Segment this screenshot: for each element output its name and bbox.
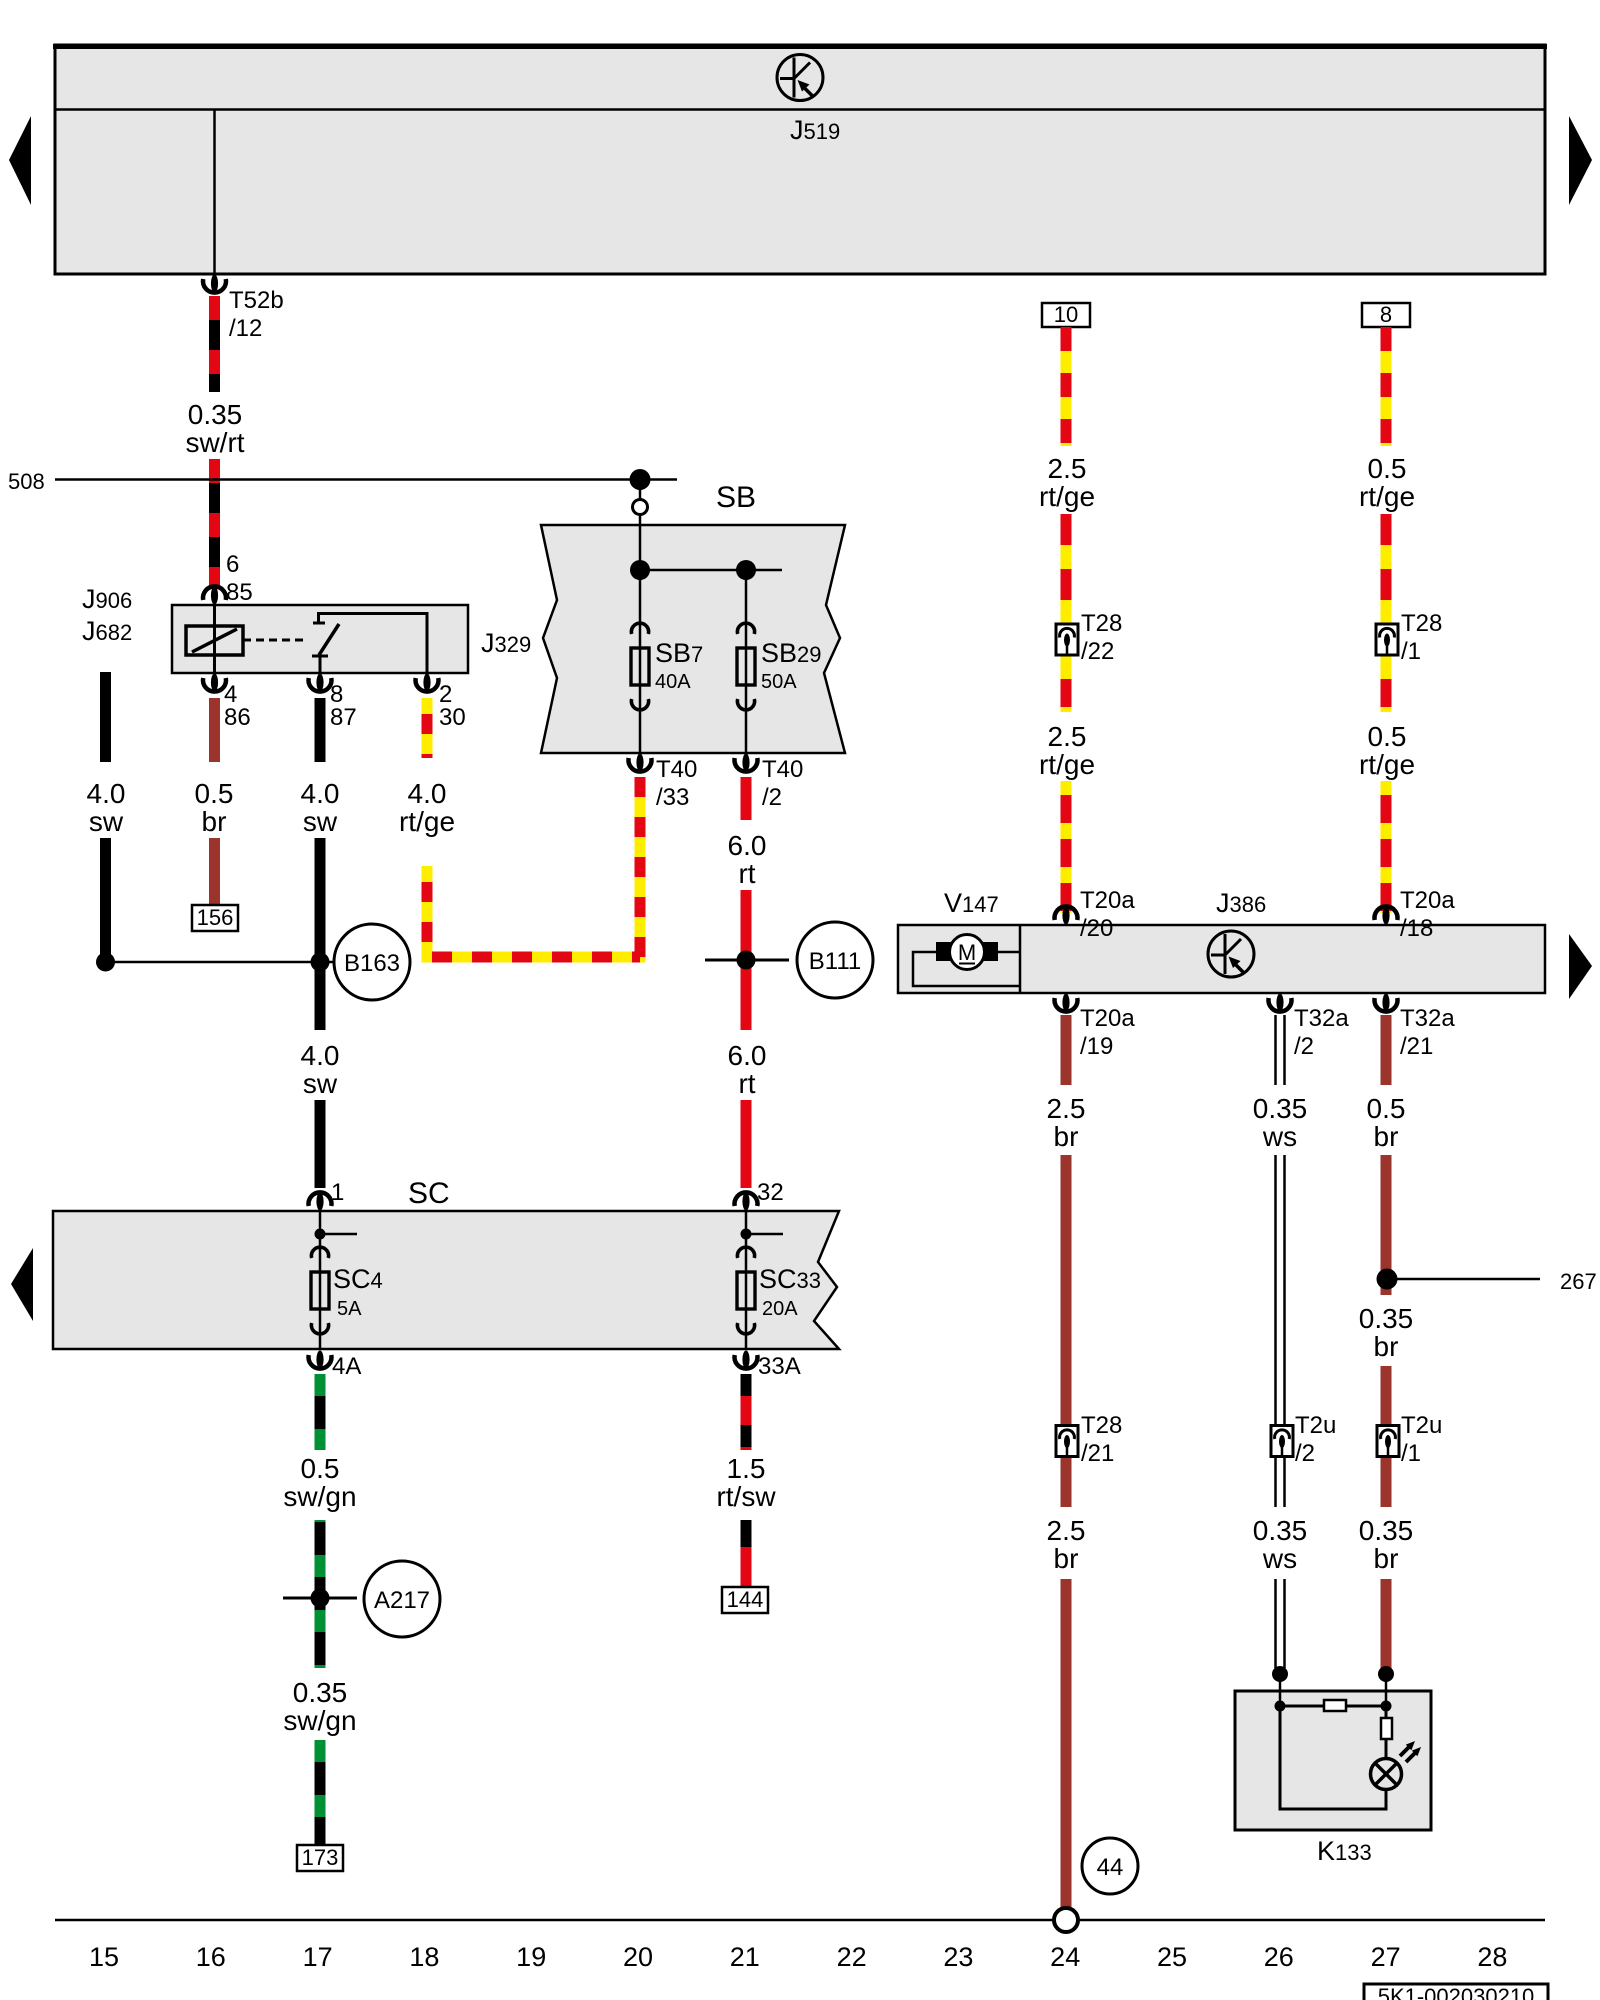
svg-text:0.35: 0.35 [188, 399, 243, 430]
svg-text:2.5: 2.5 [1048, 453, 1087, 484]
svg-text:J329: J329 [481, 628, 531, 658]
svg-text:rt: rt [738, 1068, 755, 1099]
svg-text:26: 26 [1264, 1942, 1294, 1972]
svg-text:4A: 4A [332, 1353, 361, 1380]
svg-text:0.5: 0.5 [1368, 453, 1407, 484]
svg-text:8: 8 [1380, 302, 1392, 327]
svg-text:17: 17 [303, 1942, 333, 1972]
svg-text:/1: /1 [1401, 1440, 1421, 1467]
svg-text:0.35: 0.35 [1359, 1515, 1414, 1546]
svg-text:0.35: 0.35 [1253, 1093, 1308, 1124]
svg-text:br: br [1374, 1331, 1399, 1362]
svg-text:/33: /33 [656, 784, 689, 811]
svg-text:/2: /2 [762, 784, 782, 811]
svg-text:J519: J519 [790, 115, 840, 145]
svg-text:6.0: 6.0 [728, 830, 767, 861]
svg-text:16: 16 [196, 1942, 226, 1972]
svg-text:87: 87 [330, 704, 357, 731]
svg-text:rt/ge: rt/ge [1359, 749, 1415, 780]
svg-text:24: 24 [1050, 1942, 1080, 1972]
svg-text:SB: SB [716, 481, 756, 514]
svg-text:508: 508 [8, 469, 45, 494]
svg-text:19: 19 [516, 1942, 546, 1972]
svg-text:SB29: SB29 [761, 638, 822, 668]
svg-text:25: 25 [1157, 1942, 1187, 1972]
svg-text:32: 32 [757, 1179, 784, 1206]
svg-text:T28: T28 [1081, 610, 1122, 637]
svg-text:br: br [202, 806, 227, 837]
svg-text:5K1-002030210: 5K1-002030210 [1378, 1984, 1535, 2000]
svg-text:br: br [1054, 1121, 1079, 1152]
svg-text:rt: rt [738, 858, 755, 889]
svg-text:SB7: SB7 [655, 638, 703, 668]
svg-text:4.0: 4.0 [301, 778, 340, 809]
svg-text:rt/ge: rt/ge [1039, 481, 1095, 512]
svg-text:J386: J386 [1216, 888, 1266, 918]
svg-text:/22: /22 [1081, 638, 1114, 665]
svg-text:T40: T40 [762, 756, 803, 783]
svg-text:T2u: T2u [1401, 1412, 1442, 1439]
svg-text:1.5: 1.5 [727, 1453, 766, 1484]
svg-text:T32a: T32a [1400, 1005, 1455, 1032]
svg-text:J682: J682 [82, 616, 132, 646]
svg-text:B163: B163 [344, 950, 400, 977]
svg-text:/2: /2 [1295, 1440, 1315, 1467]
svg-text:ws: ws [1262, 1121, 1297, 1152]
svg-text:sw/gn: sw/gn [283, 1705, 356, 1736]
svg-text:5A: 5A [337, 1298, 362, 1320]
svg-text:J906: J906 [82, 584, 132, 614]
svg-text:/19: /19 [1080, 1033, 1113, 1060]
svg-text:23: 23 [943, 1942, 973, 1972]
svg-text:18: 18 [409, 1942, 439, 1972]
svg-text:/18: /18 [1400, 915, 1433, 942]
svg-text:28: 28 [1477, 1942, 1507, 1972]
svg-text:50A: 50A [761, 671, 797, 693]
svg-text:0.35: 0.35 [1359, 1303, 1414, 1334]
svg-text:SC: SC [408, 1177, 450, 1210]
svg-text:rt/ge: rt/ge [1039, 749, 1095, 780]
svg-text:6.0: 6.0 [728, 1040, 767, 1071]
svg-text:2.5: 2.5 [1047, 1093, 1086, 1124]
svg-text:20: 20 [623, 1942, 653, 1972]
svg-text:K133: K133 [1317, 1836, 1372, 1866]
svg-text:44: 44 [1097, 1854, 1124, 1881]
svg-text:sw/gn: sw/gn [283, 1481, 356, 1512]
svg-text:20A: 20A [762, 1298, 798, 1320]
svg-text:SC33: SC33 [759, 1264, 821, 1294]
svg-text:/21: /21 [1400, 1033, 1433, 1060]
svg-text:21: 21 [730, 1942, 760, 1972]
svg-text:0.35: 0.35 [1253, 1515, 1308, 1546]
svg-text:6: 6 [226, 551, 239, 578]
svg-text:br: br [1374, 1543, 1399, 1574]
svg-text:br: br [1374, 1121, 1399, 1152]
svg-text:T2u: T2u [1295, 1412, 1336, 1439]
svg-text:156: 156 [197, 905, 234, 930]
svg-text:86: 86 [224, 704, 251, 731]
svg-text:267: 267 [1560, 1269, 1597, 1294]
svg-text:rt/ge: rt/ge [399, 806, 455, 837]
svg-text:T52b: T52b [229, 287, 284, 314]
svg-text:1: 1 [331, 1179, 344, 1206]
svg-text:SC4: SC4 [333, 1264, 383, 1294]
svg-text:sw: sw [303, 1068, 338, 1099]
svg-text:0.5: 0.5 [1367, 1093, 1406, 1124]
svg-text:sw: sw [89, 806, 124, 837]
svg-text:T20a: T20a [1080, 887, 1135, 914]
svg-text:15: 15 [89, 1942, 119, 1972]
svg-text:T20a: T20a [1400, 887, 1455, 914]
svg-text:T40: T40 [656, 756, 697, 783]
svg-text:/2: /2 [1294, 1033, 1314, 1060]
svg-text:0.5: 0.5 [301, 1453, 340, 1484]
svg-text:4.0: 4.0 [87, 778, 126, 809]
svg-text:/1: /1 [1401, 638, 1421, 665]
svg-text:ws: ws [1262, 1543, 1297, 1574]
svg-text:2.5: 2.5 [1047, 1515, 1086, 1546]
svg-text:V147: V147 [944, 888, 999, 918]
svg-text:22: 22 [837, 1942, 867, 1972]
svg-text:173: 173 [302, 1845, 339, 1870]
svg-text:sw/rt: sw/rt [185, 427, 244, 458]
svg-text:40A: 40A [655, 671, 691, 693]
svg-text:30: 30 [439, 704, 466, 731]
svg-text:10: 10 [1054, 302, 1078, 327]
svg-text:0.5: 0.5 [195, 778, 234, 809]
svg-text:rt/sw: rt/sw [716, 1481, 776, 1512]
svg-text:144: 144 [727, 1587, 764, 1612]
svg-text:A217: A217 [374, 1587, 430, 1614]
svg-text:B111: B111 [809, 948, 862, 975]
svg-text:4.0: 4.0 [408, 778, 447, 809]
svg-text:/12: /12 [229, 315, 262, 342]
svg-text:/21: /21 [1081, 1440, 1114, 1467]
svg-text:T28: T28 [1401, 610, 1442, 637]
svg-text:M: M [958, 940, 976, 965]
svg-text:T32a: T32a [1294, 1005, 1349, 1032]
svg-text:0.5: 0.5 [1368, 721, 1407, 752]
svg-text:/20: /20 [1080, 915, 1113, 942]
svg-text:T20a: T20a [1080, 1005, 1135, 1032]
svg-text:T28: T28 [1081, 1412, 1122, 1439]
svg-text:4.0: 4.0 [301, 1040, 340, 1071]
svg-text:27: 27 [1371, 1942, 1401, 1972]
svg-text:rt/ge: rt/ge [1359, 481, 1415, 512]
svg-text:0.35: 0.35 [293, 1677, 348, 1708]
svg-text:br: br [1054, 1543, 1079, 1574]
svg-text:85: 85 [226, 579, 253, 606]
svg-text:sw: sw [303, 806, 338, 837]
svg-text:33A: 33A [758, 1353, 801, 1380]
svg-text:2.5: 2.5 [1048, 721, 1087, 752]
